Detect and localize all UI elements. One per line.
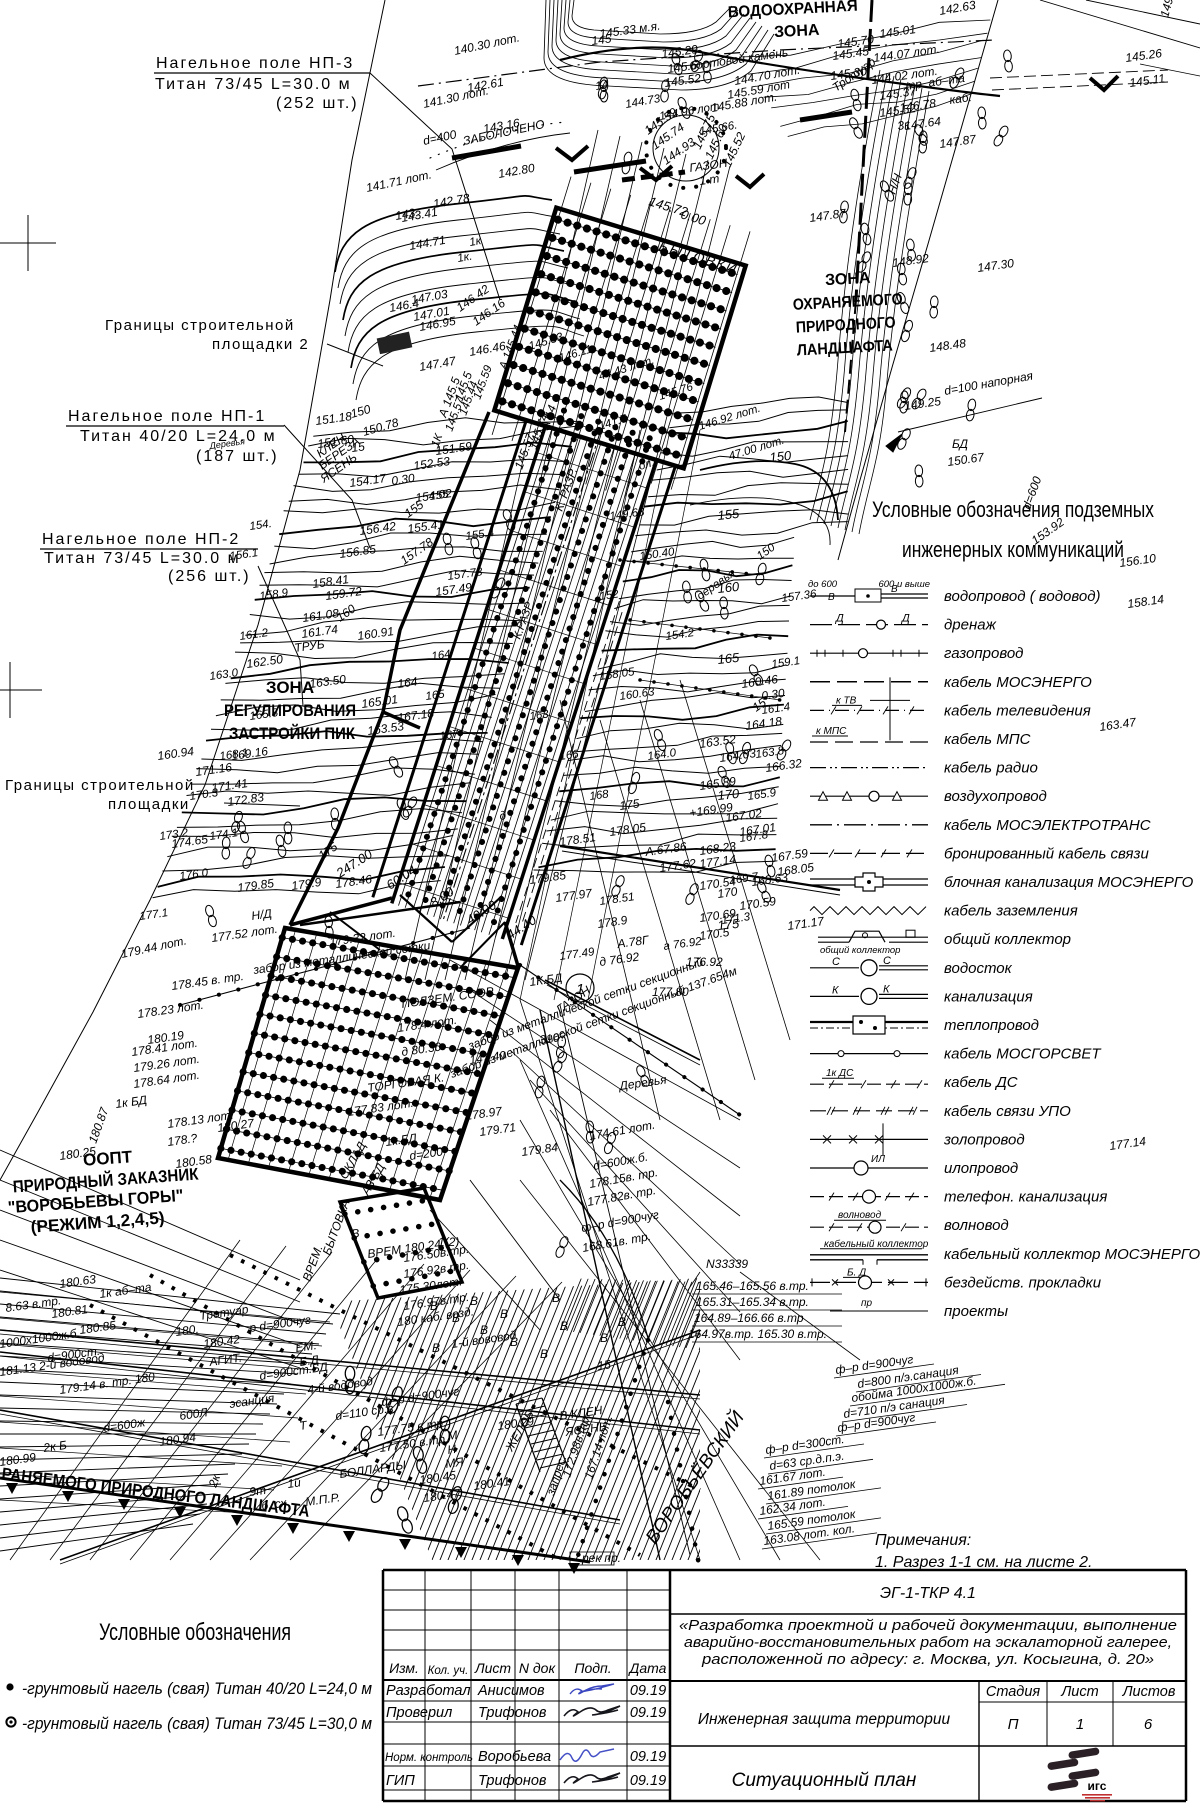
svg-text:Условные обозначения: Условные обозначения — [99, 1619, 291, 1646]
svg-text:1к ДС: 1к ДС — [826, 1068, 854, 1079]
svg-text:Д: Д — [834, 613, 844, 625]
svg-text:Воробьева: Воробьева — [478, 1749, 551, 1765]
svg-text:бронированный кабель связи: бронированный кабель связи — [944, 845, 1150, 862]
svg-text:1 т: 1 т — [698, 171, 720, 188]
svg-text:В: В — [600, 1331, 608, 1345]
svg-text:канализация: канализация — [944, 988, 1033, 1005]
svg-text:Границы строительной: Границы строительной — [5, 777, 195, 794]
svg-text:В: В — [430, 1299, 438, 1313]
svg-text:В: В — [480, 1323, 488, 1337]
svg-text:09.19: 09.19 — [630, 1773, 666, 1789]
svg-text:кабельный коллектор МОСЭНЕРГ: кабельный коллектор МОСЭНЕРГО — [944, 1246, 1200, 1263]
svg-text:Лист: Лист — [474, 1660, 511, 1676]
svg-text:-грунтовый нагель (свая) Ти: -грунтовый нагель (свая) Титан 40/20 L=2… — [22, 1680, 372, 1698]
svg-text:Границы строительной: Границы строительной — [105, 317, 295, 334]
svg-text:водосток: водосток — [944, 960, 1013, 977]
svg-text:Титан 73/45 L=30.0 м: Титан 73/45 L=30.0 м — [155, 76, 352, 93]
svg-text:Листов: Листов — [1122, 1684, 1176, 1700]
svg-text:(256 шт.): (256 шт.) — [168, 568, 251, 585]
svg-text:П: П — [1008, 1716, 1019, 1733]
svg-text:илопровод: илопровод — [944, 1160, 1018, 1177]
svg-text:600 и выше: 600 и выше — [878, 579, 930, 590]
svg-text:проекты: проекты — [944, 1303, 1008, 1320]
svg-text:14: 14 — [594, 79, 609, 93]
svg-text:164.97в.тр. 165.30 в.тр.: 164.97в.тр. 165.30 в.тр. — [688, 1327, 827, 1341]
svg-text:к МПС: к МПС — [816, 726, 847, 737]
svg-text:6: 6 — [1144, 1716, 1153, 1733]
svg-text:кабель МПС: кабель МПС — [944, 731, 1031, 748]
svg-text:165: 165 — [717, 650, 741, 667]
svg-text:Трифонов: Трифонов — [478, 1705, 547, 1721]
svg-text:1: 1 — [1076, 1716, 1084, 1733]
svg-text:Д: Д — [900, 613, 910, 625]
svg-text:Примечания:: Примечания: — [875, 1532, 971, 1549]
svg-text:Нагельное поле НП-3: Нагельное поле НП-3 — [156, 55, 354, 72]
svg-text:N33339: N33339 — [706, 1257, 748, 1271]
svg-text:В: В — [540, 1347, 548, 1361]
svg-text:В: В — [452, 1311, 460, 1325]
svg-text:кабель МОСГОРСВЕТ: кабель МОСГОРСВЕТ — [944, 1046, 1102, 1063]
svg-text:аварийно-восстановительных раб: аварийно-восстановительных работ на эска… — [684, 1635, 1172, 1651]
svg-text:165.31–165.34 в.тр.: 165.31–165.34 в.тр. — [696, 1295, 809, 1309]
svg-text:175: 175 — [618, 796, 640, 813]
svg-text:С: С — [883, 955, 891, 967]
svg-text:воздухопровод: воздухопровод — [944, 788, 1047, 805]
svg-text:кабель радио: кабель радио — [944, 760, 1038, 777]
svg-text:Стадия: Стадия — [986, 1684, 1041, 1700]
svg-text:водопровод ( водовод): водопровод ( водовод) — [944, 588, 1100, 605]
svg-text:кабель телевидения: кабель телевидения — [944, 702, 1091, 719]
svg-text:В: В — [432, 1341, 440, 1355]
svg-text:теплопровод: теплопровод — [944, 1017, 1039, 1034]
svg-text:РЕГУЛИРОВАНИЯ: РЕГУЛИРОВАНИЯ — [224, 701, 356, 720]
svg-text:ЗОНА: ЗОНА — [774, 22, 821, 41]
svg-text:ЗОНА: ЗОНА — [266, 678, 314, 697]
svg-text:ИЛ: ИЛ — [871, 1154, 885, 1165]
svg-text:телефон. канализация: телефон. канализация — [944, 1189, 1107, 1206]
svg-text:рек пр.: рек пр. — [581, 1551, 621, 1565]
svg-text:ЗОНА: ЗОНА — [825, 270, 872, 289]
svg-text:Ситуационный план: Ситуационный план — [732, 1770, 917, 1791]
svg-text:В: В — [560, 1319, 568, 1333]
svg-text:В: В — [470, 1294, 478, 1308]
svg-text:ЭГ-1-ТКР 4.1: ЭГ-1-ТКР 4.1 — [880, 1585, 976, 1602]
svg-text:кабель МОСЭЛЕКТРОТРАНС: кабель МОСЭЛЕКТРОТРАНС — [944, 817, 1151, 834]
svg-text:золопровод: золопровод — [943, 1131, 1025, 1148]
svg-text:Н/Д: Н/Д — [250, 906, 273, 923]
svg-text:ГИП: ГИП — [386, 1773, 415, 1789]
svg-text:ЗАСТРОЙКИ ПИК: ЗАСТРОЙКИ ПИК — [229, 724, 356, 743]
svg-text:Условные обозначения подземных: Условные обозначения подземных — [872, 497, 1154, 522]
svg-text:кабель связи УПО: кабель связи УПО — [944, 1103, 1071, 1120]
svg-text:1: 1 — [576, 981, 584, 998]
svg-text:Анисимов: Анисимов — [477, 1683, 545, 1699]
svg-text:кабельный коллектор: кабельный коллектор — [824, 1238, 929, 1250]
svg-text:1к.: 1к. — [456, 251, 473, 265]
svg-text:игс: игс — [1088, 1779, 1107, 1793]
svg-text:Б.Д: Б.Д — [298, 1352, 320, 1369]
svg-text:расположенной по адресу: г. Мо: расположенной по адресу: г. Москва, ул. … — [701, 1652, 1154, 1668]
svg-text:Изм.: Изм. — [389, 1660, 419, 1676]
svg-text:Проверил: Проверил — [386, 1705, 452, 1721]
svg-text:В: В — [500, 1307, 508, 1321]
svg-text:кабель заземления: кабель заземления — [944, 903, 1078, 920]
svg-text:Лист: Лист — [1060, 1684, 1098, 1700]
svg-text:Нагельное поле НП-2: Нагельное поле НП-2 — [42, 531, 240, 548]
svg-text:инженерных коммуникаций: инженерных коммуникаций — [902, 537, 1124, 562]
svg-text:15: 15 — [596, 1357, 611, 1373]
svg-text:БД: БД — [952, 437, 969, 451]
svg-text:бездейств. прокладки: бездейств. прокладки — [944, 1274, 1102, 1291]
svg-text:газопровод: газопровод — [944, 645, 1023, 662]
svg-text:ООПТ: ООПТ — [82, 1147, 133, 1169]
svg-text:Титан 40/20 L=24.0 м: Титан 40/20 L=24.0 м — [80, 428, 277, 445]
svg-text:N док: N док — [519, 1660, 557, 1676]
svg-text:В: В — [510, 1335, 518, 1349]
svg-text:С: С — [832, 956, 840, 968]
svg-text:общий коллектор: общий коллектор — [944, 931, 1071, 948]
svg-text:дренаж: дренаж — [944, 617, 997, 634]
svg-text:Подп.: Подп. — [574, 1660, 611, 1676]
svg-text:В: В — [828, 592, 835, 603]
svg-text:Разработал: Разработал — [386, 1683, 471, 1699]
svg-text:155: 155 — [717, 506, 741, 523]
svg-text:(187 шт.): (187 шт.) — [196, 448, 279, 465]
svg-text:площадки 2: площадки 2 — [212, 336, 309, 353]
svg-text:1. Разрез 1-1 см. на листе 2.: 1. Разрез 1-1 см. на листе 2. — [875, 1554, 1092, 1571]
svg-text:09.19: 09.19 — [630, 1749, 666, 1765]
svg-text:Инженерная защита территории: Инженерная защита территории — [698, 1711, 951, 1728]
svg-text:К: К — [883, 983, 890, 995]
svg-text:до 600: до 600 — [808, 579, 838, 590]
svg-text:К: К — [832, 984, 839, 996]
svg-text:Нагельное поле НП-1: Нагельное поле НП-1 — [68, 408, 266, 425]
svg-text:площадки: площадки — [108, 796, 190, 813]
svg-text:09.19: 09.19 — [630, 1705, 666, 1721]
svg-text:09.19: 09.19 — [630, 1683, 666, 1699]
svg-text:Титан 73/45 L=30.0 м: Титан 73/45 L=30.0 м — [44, 550, 241, 567]
svg-text:1й: 1й — [286, 1475, 301, 1491]
svg-text:волновод: волновод — [838, 1210, 882, 1221]
svg-text:«Разработка проектной и рабоче: «Разработка проектной и рабочей документ… — [679, 1618, 1177, 1634]
svg-text:блочная канализация МОСЭНЕРГ: блочная канализация МОСЭНЕРГО — [944, 874, 1194, 891]
svg-text:В: В — [891, 584, 898, 595]
svg-text:(252 шт.): (252 шт.) — [276, 95, 359, 112]
svg-text:к ТВ: к ТВ — [836, 695, 857, 706]
svg-text:-грунтовый нагель (свая) Ти: -грунтовый нагель (свая) Титан 73/45 L=3… — [22, 1715, 372, 1733]
svg-text:кабель МОСЭНЕРГО: кабель МОСЭНЕРГО — [944, 674, 1092, 691]
svg-text:кабель ДС: кабель ДС — [944, 1074, 1018, 1091]
svg-text:164.89–166.66 в.тр: 164.89–166.66 в.тр — [694, 1311, 804, 1325]
svg-text:Кол. уч.: Кол. уч. — [428, 1665, 469, 1677]
svg-text:пр: пр — [861, 1298, 873, 1309]
svg-text:Трифонов: Трифонов — [478, 1773, 547, 1789]
svg-text:Норм. контроль: Норм. контроль — [385, 1752, 473, 1764]
svg-text:В: В — [618, 1315, 626, 1329]
svg-text:170: 170 — [716, 884, 738, 901]
svg-text:Дата: Дата — [628, 1660, 667, 1676]
svg-text:164: 164 — [396, 674, 418, 691]
svg-text:волновод: волновод — [944, 1217, 1009, 1234]
